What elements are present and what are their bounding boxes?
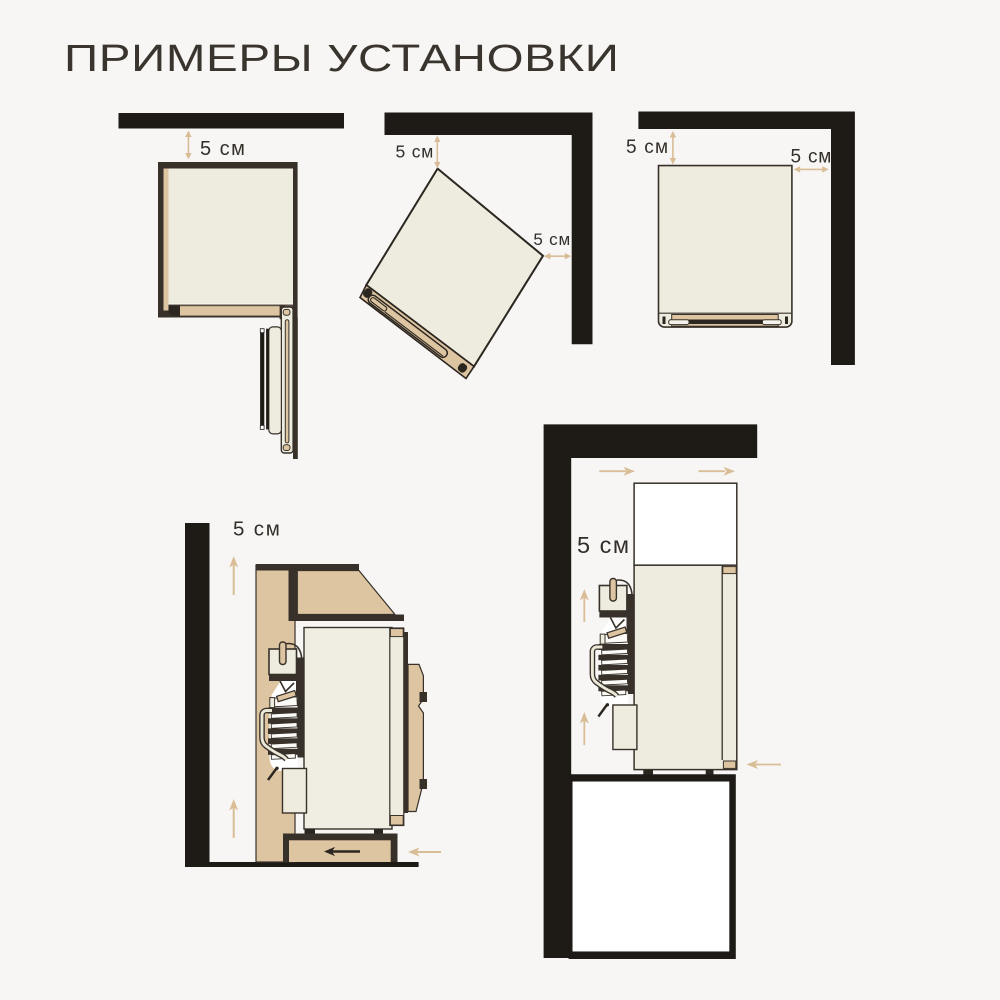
svg-text:5 см: 5 см bbox=[626, 137, 669, 158]
svg-text:5 см: 5 см bbox=[200, 138, 246, 160]
svg-text:5 см: 5 см bbox=[577, 532, 631, 558]
svg-text:5 см: 5 см bbox=[533, 230, 571, 249]
svg-text:5 см: 5 см bbox=[396, 141, 435, 161]
svg-text:5 см: 5 см bbox=[791, 146, 833, 167]
svg-text:5 см: 5 см bbox=[233, 517, 282, 540]
